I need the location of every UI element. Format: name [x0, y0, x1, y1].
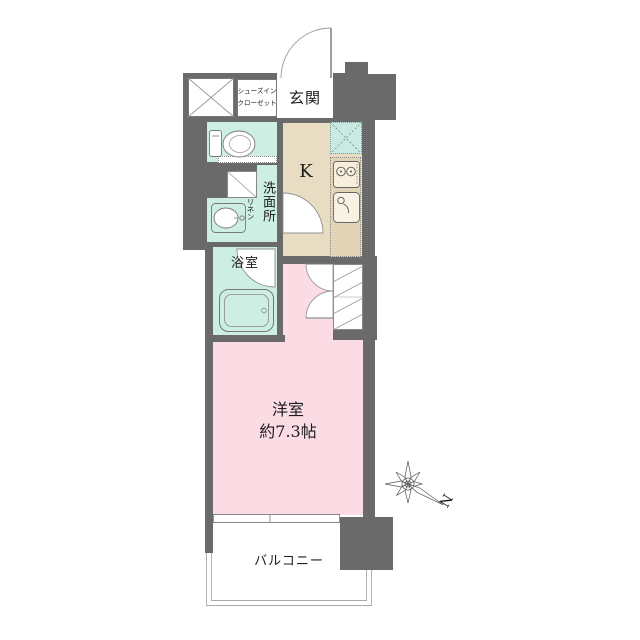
room-vestibule [283, 264, 333, 340]
washroom-label: 洗面所 [258, 181, 277, 241]
toilet-shelf [218, 156, 277, 163]
refrigerator-space [330, 122, 362, 154]
wall-bath-room-divider [205, 335, 285, 342]
kitchen-counter [330, 157, 361, 257]
entrance-door-arc-icon [281, 28, 331, 78]
kitchen-label: K [292, 160, 320, 184]
bathroom-label: 浴室 [213, 256, 277, 272]
entrance-label: 玄関 [277, 88, 333, 108]
wall-room-right [363, 337, 375, 520]
floor-plan: シューズインクローゼット 玄関 K 洗面所 リネン 浴室 洋室約7.3帖 バルコ… [0, 0, 640, 640]
window [213, 514, 340, 523]
wall-topright-block-b [368, 74, 396, 120]
closet [333, 264, 363, 330]
main-room-label: 洋室約7.3帖 [213, 398, 363, 444]
wall-topright-block-a [345, 62, 368, 120]
shoe-closet-label: シューズインクローゼット [237, 81, 277, 115]
wall-under-kitchen [277, 256, 377, 264]
balcony-label: バルコニー [211, 553, 367, 571]
wall-left-lower [205, 247, 213, 553]
wall-kitchen-right [362, 120, 375, 264]
north-label: N [433, 488, 458, 513]
wall-closet-right [363, 256, 377, 340]
linen-label: リネン [245, 198, 256, 228]
pipe-shaft-box [188, 78, 234, 117]
linen-shelf [227, 171, 257, 198]
